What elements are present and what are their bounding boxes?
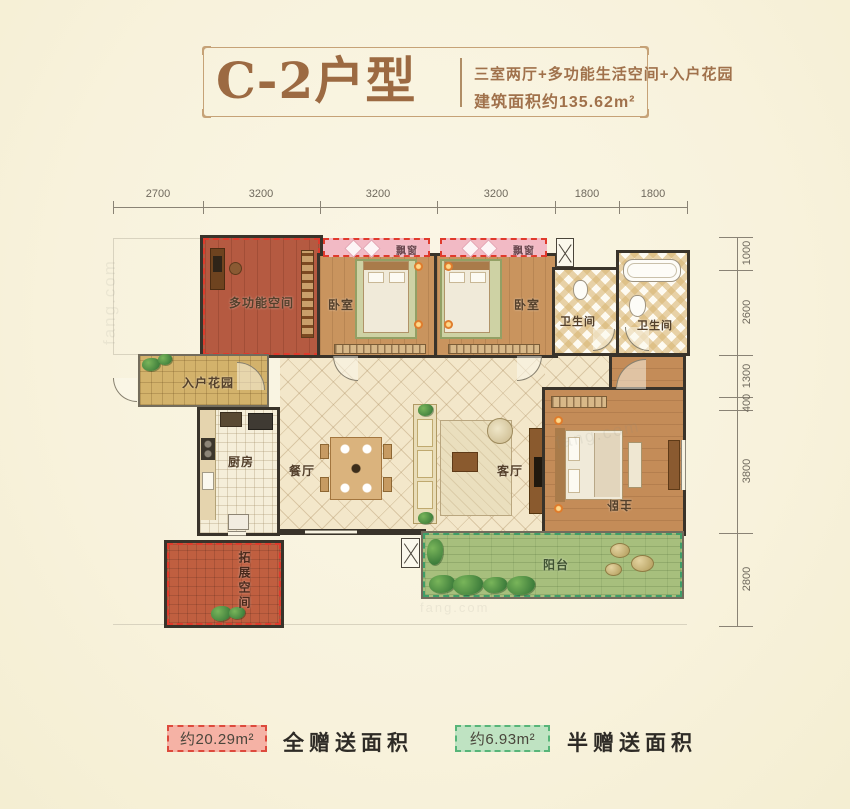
balcony-rock [610,543,630,558]
balcony-plant [483,577,507,593]
dim-tick [687,201,688,214]
full-gift-swatch: 约20.29m² [167,725,267,752]
dim-value: 3200 [249,188,273,200]
bay-cushion [461,239,479,257]
kitchen-sink [202,472,214,490]
master-window [681,440,686,490]
sofa-cushion [417,450,433,478]
dim-tick [555,201,556,214]
subtitle-features: 三室两厅+多功能生活空间+入户花园 [474,63,734,84]
pillow [568,469,580,493]
room-label-dining: 餐厅 [289,462,315,479]
kitchen-counter [200,410,216,520]
subtitle-area: 建筑面积约135.62m² [474,88,636,112]
expansion-space [167,543,281,625]
garden-plant [158,354,172,365]
dim-tick [719,626,753,627]
balcony-plant [427,539,443,565]
bay-cushion [479,239,497,257]
toilet [629,295,646,317]
room-label-master: 主卧 [606,497,632,514]
frame-corner-ornament [202,109,211,118]
room-label-bathroom-right: 卫生间 [637,317,673,333]
entry-door [113,378,137,402]
bed-bench [628,442,642,488]
kitchen-window [228,531,246,536]
bedroom-right-wardrobe [448,344,540,354]
frame-corner-ornament [202,46,211,55]
master-wardrobe [551,396,607,408]
dim-value: 2800 [741,567,753,591]
frame-corner-ornament [640,109,649,118]
toilet [573,280,588,300]
nightstand-lamp [554,504,563,513]
room-label-bedroom-left: 卧室 [328,296,354,313]
title-divider [460,58,462,107]
room-label-multi-function: 多功能空间 [229,294,294,311]
sofa [413,404,437,524]
coffee-table [452,452,478,472]
desk-chair [229,262,242,275]
garden-inner-door [237,362,265,390]
dining-chair [383,477,392,492]
watermark: fang.com [420,600,489,615]
dim-value: 1800 [575,188,599,200]
nightstand-lamp [414,262,423,271]
room-label-expansion: 拓展空间 [236,551,253,611]
dim-line-horizontal [113,207,687,208]
bookshelf [301,250,314,338]
dim-value: 2600 [741,300,753,324]
room-label-bathroom-left: 卫生间 [560,313,596,329]
bedroom-left-wardrobe [334,344,426,354]
sofa-cushion [417,481,433,509]
dim-value: 400 [741,394,753,412]
pillow [449,272,465,283]
decor-plant [418,512,433,524]
full-gift-label: 全赠送面积 [283,727,413,757]
dresser [668,440,680,490]
bay-cushion [362,239,380,257]
nightstand-lamp [444,262,453,271]
bedroom-left-bed [363,261,409,333]
tv [534,457,542,487]
balcony-plant [453,575,483,595]
dim-tick [719,270,753,271]
dim-tick [113,201,114,214]
dim-line-vertical [737,237,738,626]
bathtub [623,259,681,282]
dining-chair [383,444,392,459]
exterior-landing [113,238,203,355]
watermark: fang.com [100,259,120,345]
counter-corner-unit [220,412,242,427]
room-label-bedroom-right: 卧室 [514,296,540,313]
tv-cabinet [529,428,546,514]
headboard [364,262,408,270]
balcony-rock [631,555,654,572]
dim-tick [320,201,321,214]
dim-tick [719,533,753,534]
dim-value: 3200 [484,188,508,200]
page-title: C-2户型 [216,50,416,112]
dim-tick [203,201,204,214]
fridge [248,413,273,430]
air-shaft [401,538,420,568]
frame-corner-ornament [640,46,649,55]
dim-value: 1300 [741,364,753,388]
room-label-bay-left: 飘窗 [396,242,418,257]
bay-cushion [344,239,362,257]
dim-tick [719,237,753,238]
half-gift-label: 半赠送面积 [567,727,697,757]
room-label-entry-garden: 入户花园 [182,374,234,391]
bathroom-left [555,270,619,353]
balcony-plant [507,576,535,595]
dim-value: 1000 [741,241,753,265]
expansion-plant [211,606,231,621]
half-gift-swatch: 约6.93m² [455,725,550,752]
pillow [470,272,486,283]
nightstand-lamp [414,320,423,329]
appliance [228,514,249,530]
corridor-floor [545,355,612,390]
nightstand-lamp [554,416,563,425]
room-label-living: 客厅 [497,462,523,479]
dim-value: 3200 [366,188,390,200]
floorplan-page: { "header": { "title": "C-2户型", "subtitl… [0,0,850,809]
air-shaft [556,238,574,267]
dining-chair [320,477,329,492]
full-gift-area-value: 约20.29m² [180,728,254,749]
dim-value: 2700 [146,188,170,200]
dim-value: 1800 [641,188,665,200]
balcony-rock [605,563,622,576]
dim-value: 3800 [741,459,753,483]
bathroom-left-door [593,329,615,351]
dim-tick [719,355,753,356]
pillow [368,272,384,283]
nightstand-lamp [444,320,453,329]
half-gift-area-value: 约6.93m² [470,728,535,749]
balcony-plant [429,575,455,593]
dim-tick [437,201,438,214]
bathtub-inner [627,263,677,278]
sofa-cushion [417,419,433,447]
pillow [389,272,405,283]
room-label-balcony: 阳台 [543,556,569,573]
dim-tick [619,201,620,214]
stove [201,438,215,460]
desk-monitor [213,256,222,272]
decor-plant [418,404,433,416]
living-window [305,530,357,534]
dining-table [330,437,382,500]
dining-chair [320,444,329,459]
kitchen [200,410,277,533]
room-label-bay-right: 飘窗 [513,242,535,257]
armchair [487,418,513,444]
bathroom-right [619,253,687,353]
room-label-kitchen: 厨房 [228,453,254,470]
